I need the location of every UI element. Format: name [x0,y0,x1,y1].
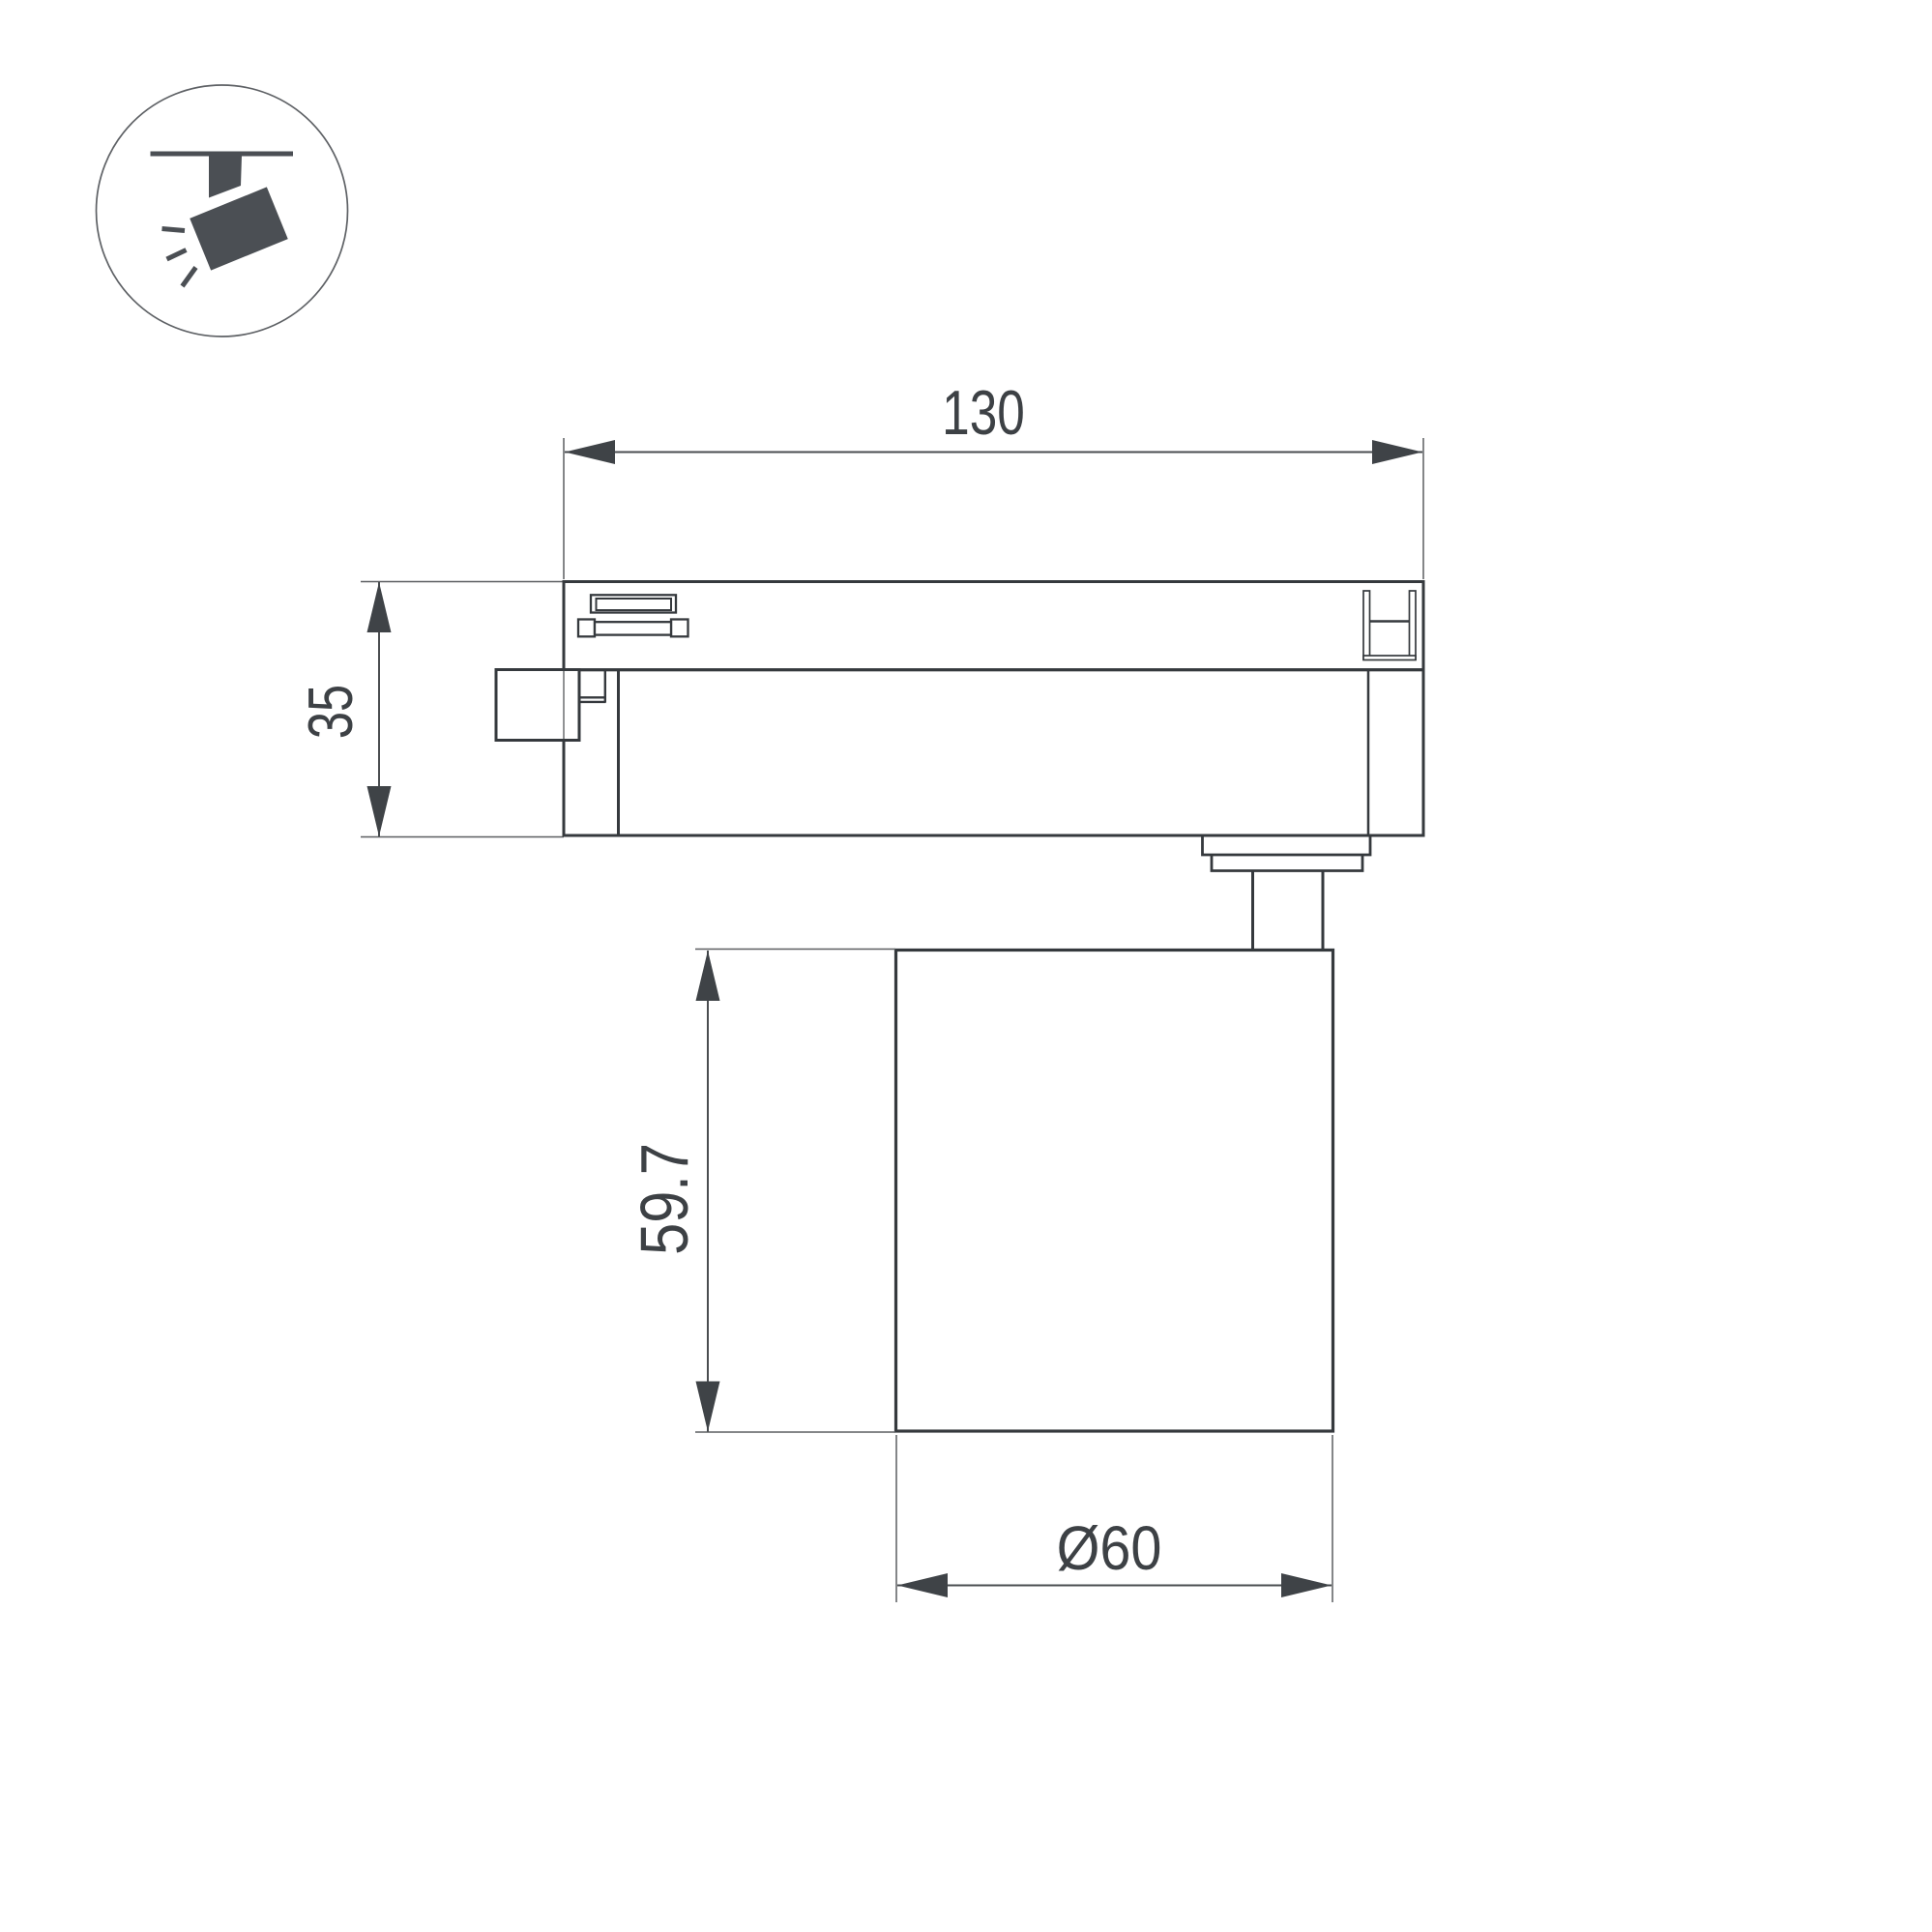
svg-text:59.7: 59.7 [626,1143,702,1255]
svg-text:35: 35 [296,685,366,739]
svg-text:Ø60: Ø60 [1057,1513,1162,1582]
svg-text:130: 130 [942,378,1025,448]
